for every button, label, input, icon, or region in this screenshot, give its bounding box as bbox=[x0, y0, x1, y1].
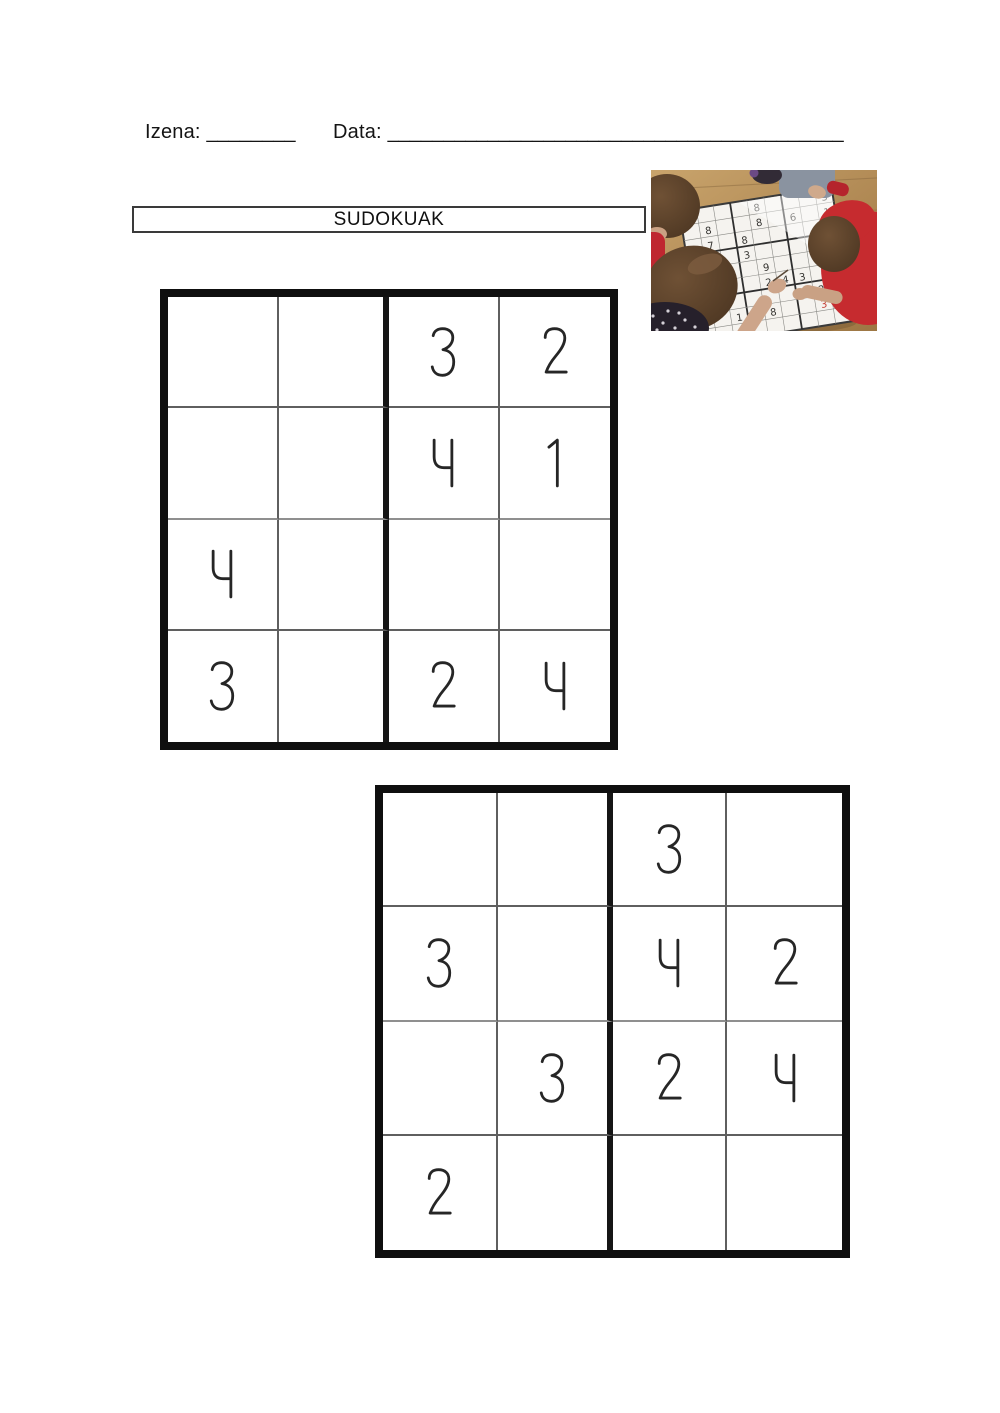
digit-2 bbox=[650, 1050, 688, 1106]
sudoku-grid-1-cell-r3c1 bbox=[168, 520, 279, 631]
sudoku-grid-1-cell-r3c4[interactable] bbox=[500, 520, 611, 631]
sudoku-grid-1-cell-r4c4 bbox=[500, 631, 611, 742]
name-label: Izena: bbox=[145, 121, 201, 143]
sudoku-grid-1-cell-r2c4 bbox=[500, 408, 611, 519]
sudoku-grid-2-cell-r1c2[interactable] bbox=[498, 793, 613, 907]
sudoku-grid-2-cell-r3c3 bbox=[613, 1022, 728, 1136]
gray-clothing bbox=[779, 170, 835, 198]
sudoku-grid-2-cell-r4c3[interactable] bbox=[613, 1136, 728, 1250]
sudoku-grid-2-cell-r2c2[interactable] bbox=[498, 907, 613, 1021]
sudoku-grid-2-cell-r3c4 bbox=[727, 1022, 842, 1136]
digit-3 bbox=[650, 821, 688, 877]
date-label: Data: bbox=[333, 121, 382, 143]
sudoku-grid-2-cell-r4c1 bbox=[383, 1136, 498, 1250]
sudoku-grid-2-cell-r1c3 bbox=[613, 793, 728, 907]
digit-4 bbox=[203, 546, 241, 602]
sudoku-grid-1-cell-r3c3[interactable] bbox=[389, 520, 500, 631]
child-hand bbox=[793, 288, 808, 300]
digit-1 bbox=[536, 435, 574, 491]
name-line: Izena: ________ bbox=[145, 121, 295, 144]
digit-4 bbox=[424, 435, 462, 491]
digit-2 bbox=[424, 658, 462, 714]
sudoku-grid-2 bbox=[375, 785, 850, 1258]
date-line: Data: __________________________________… bbox=[333, 121, 844, 144]
digit-3 bbox=[424, 324, 462, 380]
sudoku-grid-1-cell-r2c2[interactable] bbox=[279, 408, 390, 519]
sudoku-grid-1-cell-r1c3 bbox=[389, 297, 500, 408]
digit-3 bbox=[203, 658, 241, 714]
date-blank-field[interactable]: ________________________________________… bbox=[388, 121, 844, 143]
sudoku-grid-2-cell-r1c1[interactable] bbox=[383, 793, 498, 907]
sudoku-grid-1-cell-r1c2[interactable] bbox=[279, 297, 390, 408]
sudoku-grid-2-cell-r2c4 bbox=[727, 907, 842, 1021]
digit-3 bbox=[533, 1050, 571, 1106]
sudoku-grid-1-cell-r2c1[interactable] bbox=[168, 408, 279, 519]
sudoku-grid-2-cell-r2c1 bbox=[383, 907, 498, 1021]
classroom-photo: 8388617873492524326158389 bbox=[651, 170, 877, 331]
sudoku-grid-1-cell-r3c2[interactable] bbox=[279, 520, 390, 631]
sudoku-grid-2-cell-r2c3 bbox=[613, 907, 728, 1021]
digit-2 bbox=[420, 1165, 458, 1221]
digit-2 bbox=[766, 935, 804, 991]
child-hair bbox=[808, 216, 860, 272]
sudoku-grid-2-cell-r3c1[interactable] bbox=[383, 1022, 498, 1136]
worksheet-page: Izena: ________ Data: __________________… bbox=[0, 0, 1000, 1413]
sudoku-grid-1-cell-r4c2[interactable] bbox=[279, 631, 390, 742]
digit-2 bbox=[536, 324, 574, 380]
sudoku-grid-1-cell-r1c4 bbox=[500, 297, 611, 408]
title-box: SUDOKUAK bbox=[132, 206, 646, 233]
sudoku-grid-2-cell-r4c4[interactable] bbox=[727, 1136, 842, 1250]
sudoku-grid-2-cell-r4c2[interactable] bbox=[498, 1136, 613, 1250]
sudoku-grid-1-cell-r2c3 bbox=[389, 408, 500, 519]
digit-3 bbox=[420, 935, 458, 991]
sudoku-grid-2-cell-r1c4[interactable] bbox=[727, 793, 842, 907]
digit-4 bbox=[536, 658, 574, 714]
name-blank-field[interactable]: ________ bbox=[206, 121, 295, 143]
sudoku-grid-1-cell-r1c1[interactable] bbox=[168, 297, 279, 408]
sudoku-grid-1 bbox=[160, 289, 618, 750]
page-title: SUDOKUAK bbox=[334, 209, 445, 231]
sudoku-grid-1-cell-r4c3 bbox=[389, 631, 500, 742]
digit-4 bbox=[650, 935, 688, 991]
sudoku-grid-2-cell-r3c2 bbox=[498, 1022, 613, 1136]
digit-4 bbox=[766, 1050, 804, 1106]
sudoku-grid-1-cell-r4c1 bbox=[168, 631, 279, 742]
